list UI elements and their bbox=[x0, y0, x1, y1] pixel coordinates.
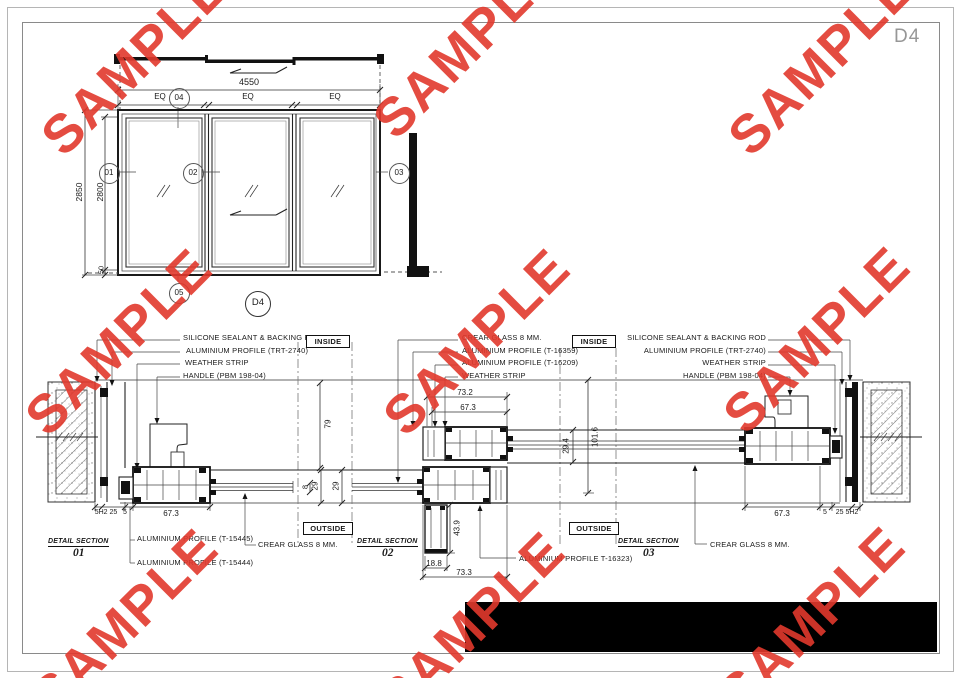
dim-73-2: 73.2 bbox=[457, 388, 473, 397]
glass-symbol bbox=[157, 185, 344, 197]
bubble-04: 04 bbox=[169, 88, 190, 109]
callout-weather-strip-2: WEATHER STRIP bbox=[462, 371, 526, 380]
elevation-linework bbox=[82, 54, 442, 282]
callout-weather-strip: WEATHER STRIP bbox=[185, 358, 249, 367]
inside-label-1: INSIDE bbox=[306, 335, 350, 348]
callout-profile-trt2740: ALUMINIUM PROFILE (TRT-2740) bbox=[186, 346, 308, 355]
bubble-ref-d4: D4 bbox=[245, 291, 271, 317]
dim-29-4: 29.4 bbox=[562, 438, 571, 454]
redaction-box bbox=[465, 602, 937, 652]
dim-bottom: 50 bbox=[97, 266, 106, 274]
detail-section-number-3: 03 bbox=[643, 547, 655, 559]
dim-101-6: 101.6 bbox=[591, 427, 600, 447]
callout-profile-t15445: ALUMINIUM PROFILE (T-15445) bbox=[137, 534, 253, 543]
detail-section-title-3: DETAIL SECTION bbox=[618, 538, 679, 547]
dim-5: 5 bbox=[123, 509, 127, 516]
dim-67-3-s2: 67.3 bbox=[460, 403, 476, 412]
callout-crear-glass-1: CREAR GLASS 8 MM. bbox=[258, 540, 338, 549]
dim-width: 4550 bbox=[239, 77, 259, 87]
outside-label-1: OUTSIDE bbox=[303, 522, 353, 535]
callout-profile-t16359: ALUMINIUM PROFILE (T-16359) bbox=[462, 346, 578, 355]
dim-eq-1: EQ bbox=[154, 92, 166, 101]
dim-5-s3: 5 bbox=[823, 509, 827, 516]
callout-crear-glass-2: CREAR GLASS 8 MM. bbox=[462, 333, 542, 342]
dim-eq-3: EQ bbox=[329, 92, 341, 101]
detail-section-title-2: DETAIL SECTION bbox=[357, 538, 418, 547]
dim-eq-2: EQ bbox=[242, 92, 254, 101]
dim-height-inner: 2800 bbox=[95, 183, 105, 202]
callout-handle: HANDLE (PBM 198-04) bbox=[183, 371, 266, 380]
callout-silicone-sealant: SILICONE SEALANT & BACKING ROD bbox=[183, 333, 322, 342]
dim-18-8: 18.8 bbox=[426, 559, 442, 568]
dim-29-a: 29 bbox=[311, 482, 320, 491]
bubble-03: 03 bbox=[389, 163, 410, 184]
dim-5h2-25: 5H2 25 bbox=[95, 509, 118, 516]
callout-profile-t16209: ALUMINIUM PROFILE (T-16209) bbox=[462, 358, 578, 367]
callout-profile-t16323: ALUMINIUM PROFILE T-16323) bbox=[519, 554, 632, 563]
bubble-02: 02 bbox=[183, 163, 204, 184]
dim-29-b: 29 bbox=[332, 482, 341, 491]
dim-79: 79 bbox=[324, 420, 333, 429]
outside-label-2: OUTSIDE bbox=[569, 522, 619, 535]
bubble-01: 01 bbox=[99, 163, 120, 184]
aluminium-profile-02c bbox=[425, 505, 447, 553]
drawing-sheet: D4 bbox=[0, 0, 960, 678]
detail-section-number-2: 02 bbox=[382, 547, 394, 559]
bubble-05: 05 bbox=[169, 283, 190, 304]
callout-profile-trt2740-3: ALUMINIUM PROFILE (TRT-2740) bbox=[566, 346, 766, 355]
detail-section-number-1: 01 bbox=[73, 547, 85, 559]
callout-handle-3: HANDLE (PBM 198-04) bbox=[566, 371, 766, 380]
dim-25-5h2: 25 5H2 bbox=[836, 509, 859, 516]
dim-73-3: 73.3 bbox=[456, 568, 472, 577]
dim-67-3-s3: 67.3 bbox=[774, 509, 790, 518]
callout-crear-glass-3: CREAR GLASS 8 MM. bbox=[710, 540, 790, 549]
dim-height-outer: 2850 bbox=[74, 183, 84, 202]
callout-profile-t15444: ALUMINIUM PROFILE (T-15444) bbox=[137, 558, 253, 567]
callout-weather-strip-3: WEATHER STRIP bbox=[566, 358, 766, 367]
dim-glass-8: 8 bbox=[301, 485, 310, 489]
dim-67-3-s1: 67.3 bbox=[163, 509, 179, 518]
detail-section-title-1: DETAIL SECTION bbox=[48, 538, 109, 547]
callout-silicone-sealant-3: SILICONE SEALANT & BACKING ROD bbox=[566, 333, 766, 342]
dim-43-9: 43.9 bbox=[453, 520, 462, 536]
